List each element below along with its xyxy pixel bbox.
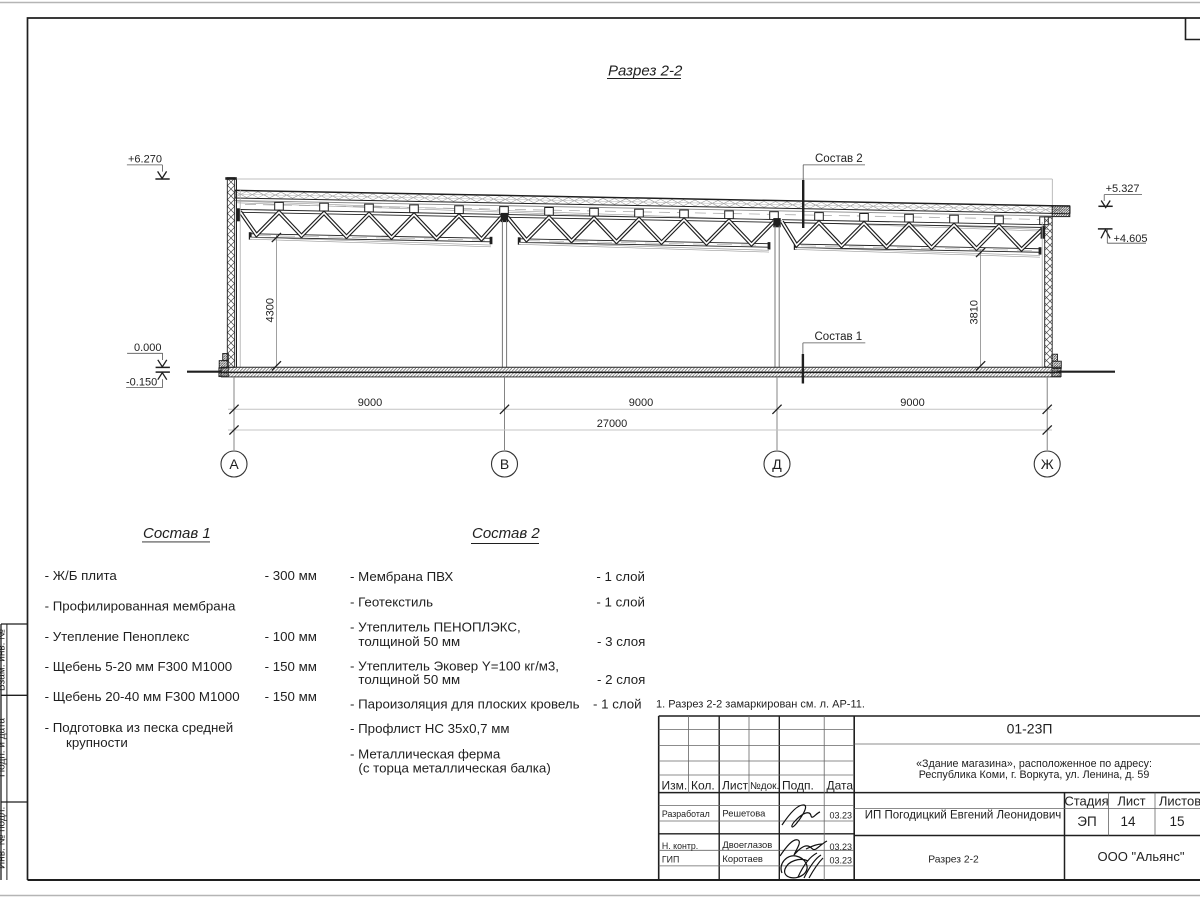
svg-text:9000: 9000 [900, 397, 924, 409]
svg-text:ЭП: ЭП [1077, 814, 1096, 829]
svg-text:Лист: Лист [1117, 794, 1145, 809]
svg-text:- 1 слой: - 1 слой [596, 595, 645, 610]
svg-text:Двоеглазов: Двоеглазов [722, 839, 772, 850]
svg-text:Изм.: Изм. [662, 778, 688, 792]
svg-text:Решетова: Решетова [722, 808, 766, 819]
svg-text:- Профилированная мембрана: - Профилированная мембрана [45, 599, 236, 614]
svg-text:- Щебень 5-20 мм F300 М1000: - Щебень 5-20 мм F300 М1000 [45, 659, 233, 674]
svg-text:- 2 слоя: - 2 слоя [597, 672, 645, 687]
svg-text:- Мембрана ПВХ: - Мембрана ПВХ [350, 569, 453, 584]
svg-text:Подп.: Подп. [782, 778, 814, 792]
svg-text:Ж: Ж [1041, 456, 1054, 472]
svg-text:Коротаев: Коротаев [722, 853, 763, 864]
svg-text:- Подготовка из песка средней: - Подготовка из песка средней [45, 720, 234, 735]
svg-text:Разрез 2-2: Разрез 2-2 [928, 854, 979, 865]
svg-text:толщиной 50 мм: толщиной 50 мм [358, 634, 460, 649]
svg-text:- Ж/Б плита: - Ж/Б плита [45, 568, 118, 583]
svg-text:01-23П: 01-23П [1007, 721, 1053, 737]
svg-text:Состав 1: Состав 1 [815, 331, 863, 343]
svg-text:- Пароизоляция для плоских кро: - Пароизоляция для плоских кровель [350, 697, 580, 712]
svg-text:0.000: 0.000 [134, 342, 162, 354]
svg-text:крупности: крупности [66, 735, 128, 750]
svg-text:- 1 слой: - 1 слой [593, 697, 642, 712]
svg-text:- 100 мм: - 100 мм [265, 629, 317, 644]
svg-text:Лист: Лист [722, 778, 749, 792]
svg-text:Состав 2: Состав 2 [815, 153, 863, 165]
svg-text:- 150 мм: - 150 мм [265, 689, 317, 704]
svg-text:- 1 слой: - 1 слой [596, 569, 645, 584]
svg-text:+5.327: +5.327 [1106, 183, 1140, 195]
svg-text:- Утеплитель ПЕНОПЛЭКС,: - Утеплитель ПЕНОПЛЭКС, [350, 620, 521, 635]
svg-text:Подп. и дата: Подп. и дата [0, 718, 7, 777]
svg-text:27000: 27000 [597, 418, 628, 430]
svg-text:03.23: 03.23 [830, 842, 853, 852]
svg-text:(с торца металлическая балка): (с торца металлическая балка) [358, 761, 550, 776]
svg-text:Листов: Листов [1159, 794, 1200, 809]
svg-text:9000: 9000 [358, 397, 382, 409]
svg-text:Состав 1: Состав 1 [143, 525, 211, 542]
svg-text:А: А [229, 456, 239, 472]
svg-text:ГИП: ГИП [662, 855, 679, 865]
svg-text:- Щебень 20-40 мм F300 М1000: - Щебень 20-40 мм F300 М1000 [45, 689, 240, 704]
svg-text:-0.150: -0.150 [126, 376, 157, 388]
svg-text:Кол.: Кол. [691, 778, 715, 792]
svg-text:9000: 9000 [629, 397, 653, 409]
svg-text:Н. контр.: Н. контр. [662, 841, 698, 851]
svg-text:- 300 мм: - 300 мм [265, 568, 317, 583]
svg-text:ИП Погодицкий Евгений Леонидов: ИП Погодицкий Евгений Леонидович [865, 809, 1062, 821]
svg-text:Состав 2: Состав 2 [472, 525, 540, 542]
svg-text:03.23: 03.23 [830, 856, 853, 866]
svg-text:- Геотекстиль: - Геотекстиль [350, 595, 433, 610]
svg-text:Взам. инв. №: Взам. инв. № [0, 629, 7, 691]
svg-text:толщиной 50 мм: толщиной 50 мм [358, 672, 460, 687]
svg-text:№док.: №док. [750, 781, 779, 792]
svg-text:Д: Д [772, 456, 782, 472]
svg-text:3810: 3810 [969, 300, 981, 324]
svg-text:+6.270: +6.270 [128, 154, 162, 166]
svg-text:Стадия: Стадия [1064, 794, 1108, 809]
svg-text:В: В [500, 456, 509, 472]
svg-text:Разрез 2-2: Разрез 2-2 [608, 63, 683, 80]
svg-text:ООО "Альянс": ООО "Альянс" [1098, 849, 1185, 864]
svg-text:- 150 мм: - 150 мм [265, 659, 317, 674]
svg-text:Разработал: Разработал [662, 809, 710, 819]
svg-text:4300: 4300 [264, 298, 276, 322]
svg-text:Инв. № подл.: Инв. № подл. [0, 807, 7, 869]
svg-text:Дата: Дата [827, 778, 854, 792]
svg-text:- Металлическая ферма: - Металлическая ферма [350, 746, 501, 761]
svg-text:Республика Коми, г. Воркута, у: Республика Коми, г. Воркута, ул. Ленина,… [919, 769, 1150, 781]
svg-text:03.23: 03.23 [830, 811, 853, 821]
svg-text:15: 15 [1169, 814, 1184, 829]
svg-text:- Утепление Пеноплекс: - Утепление Пеноплекс [45, 629, 190, 644]
svg-text:1. Разрез 2-2 замаркирован см.: 1. Разрез 2-2 замаркирован см. л. АР-11. [656, 698, 865, 710]
svg-text:+4.605: +4.605 [1114, 233, 1148, 245]
svg-text:14: 14 [1120, 814, 1136, 829]
svg-text:- Профлист НС 35х0,7 мм: - Профлист НС 35х0,7 мм [350, 721, 510, 736]
svg-text:- 3 слоя: - 3 слоя [597, 634, 645, 649]
